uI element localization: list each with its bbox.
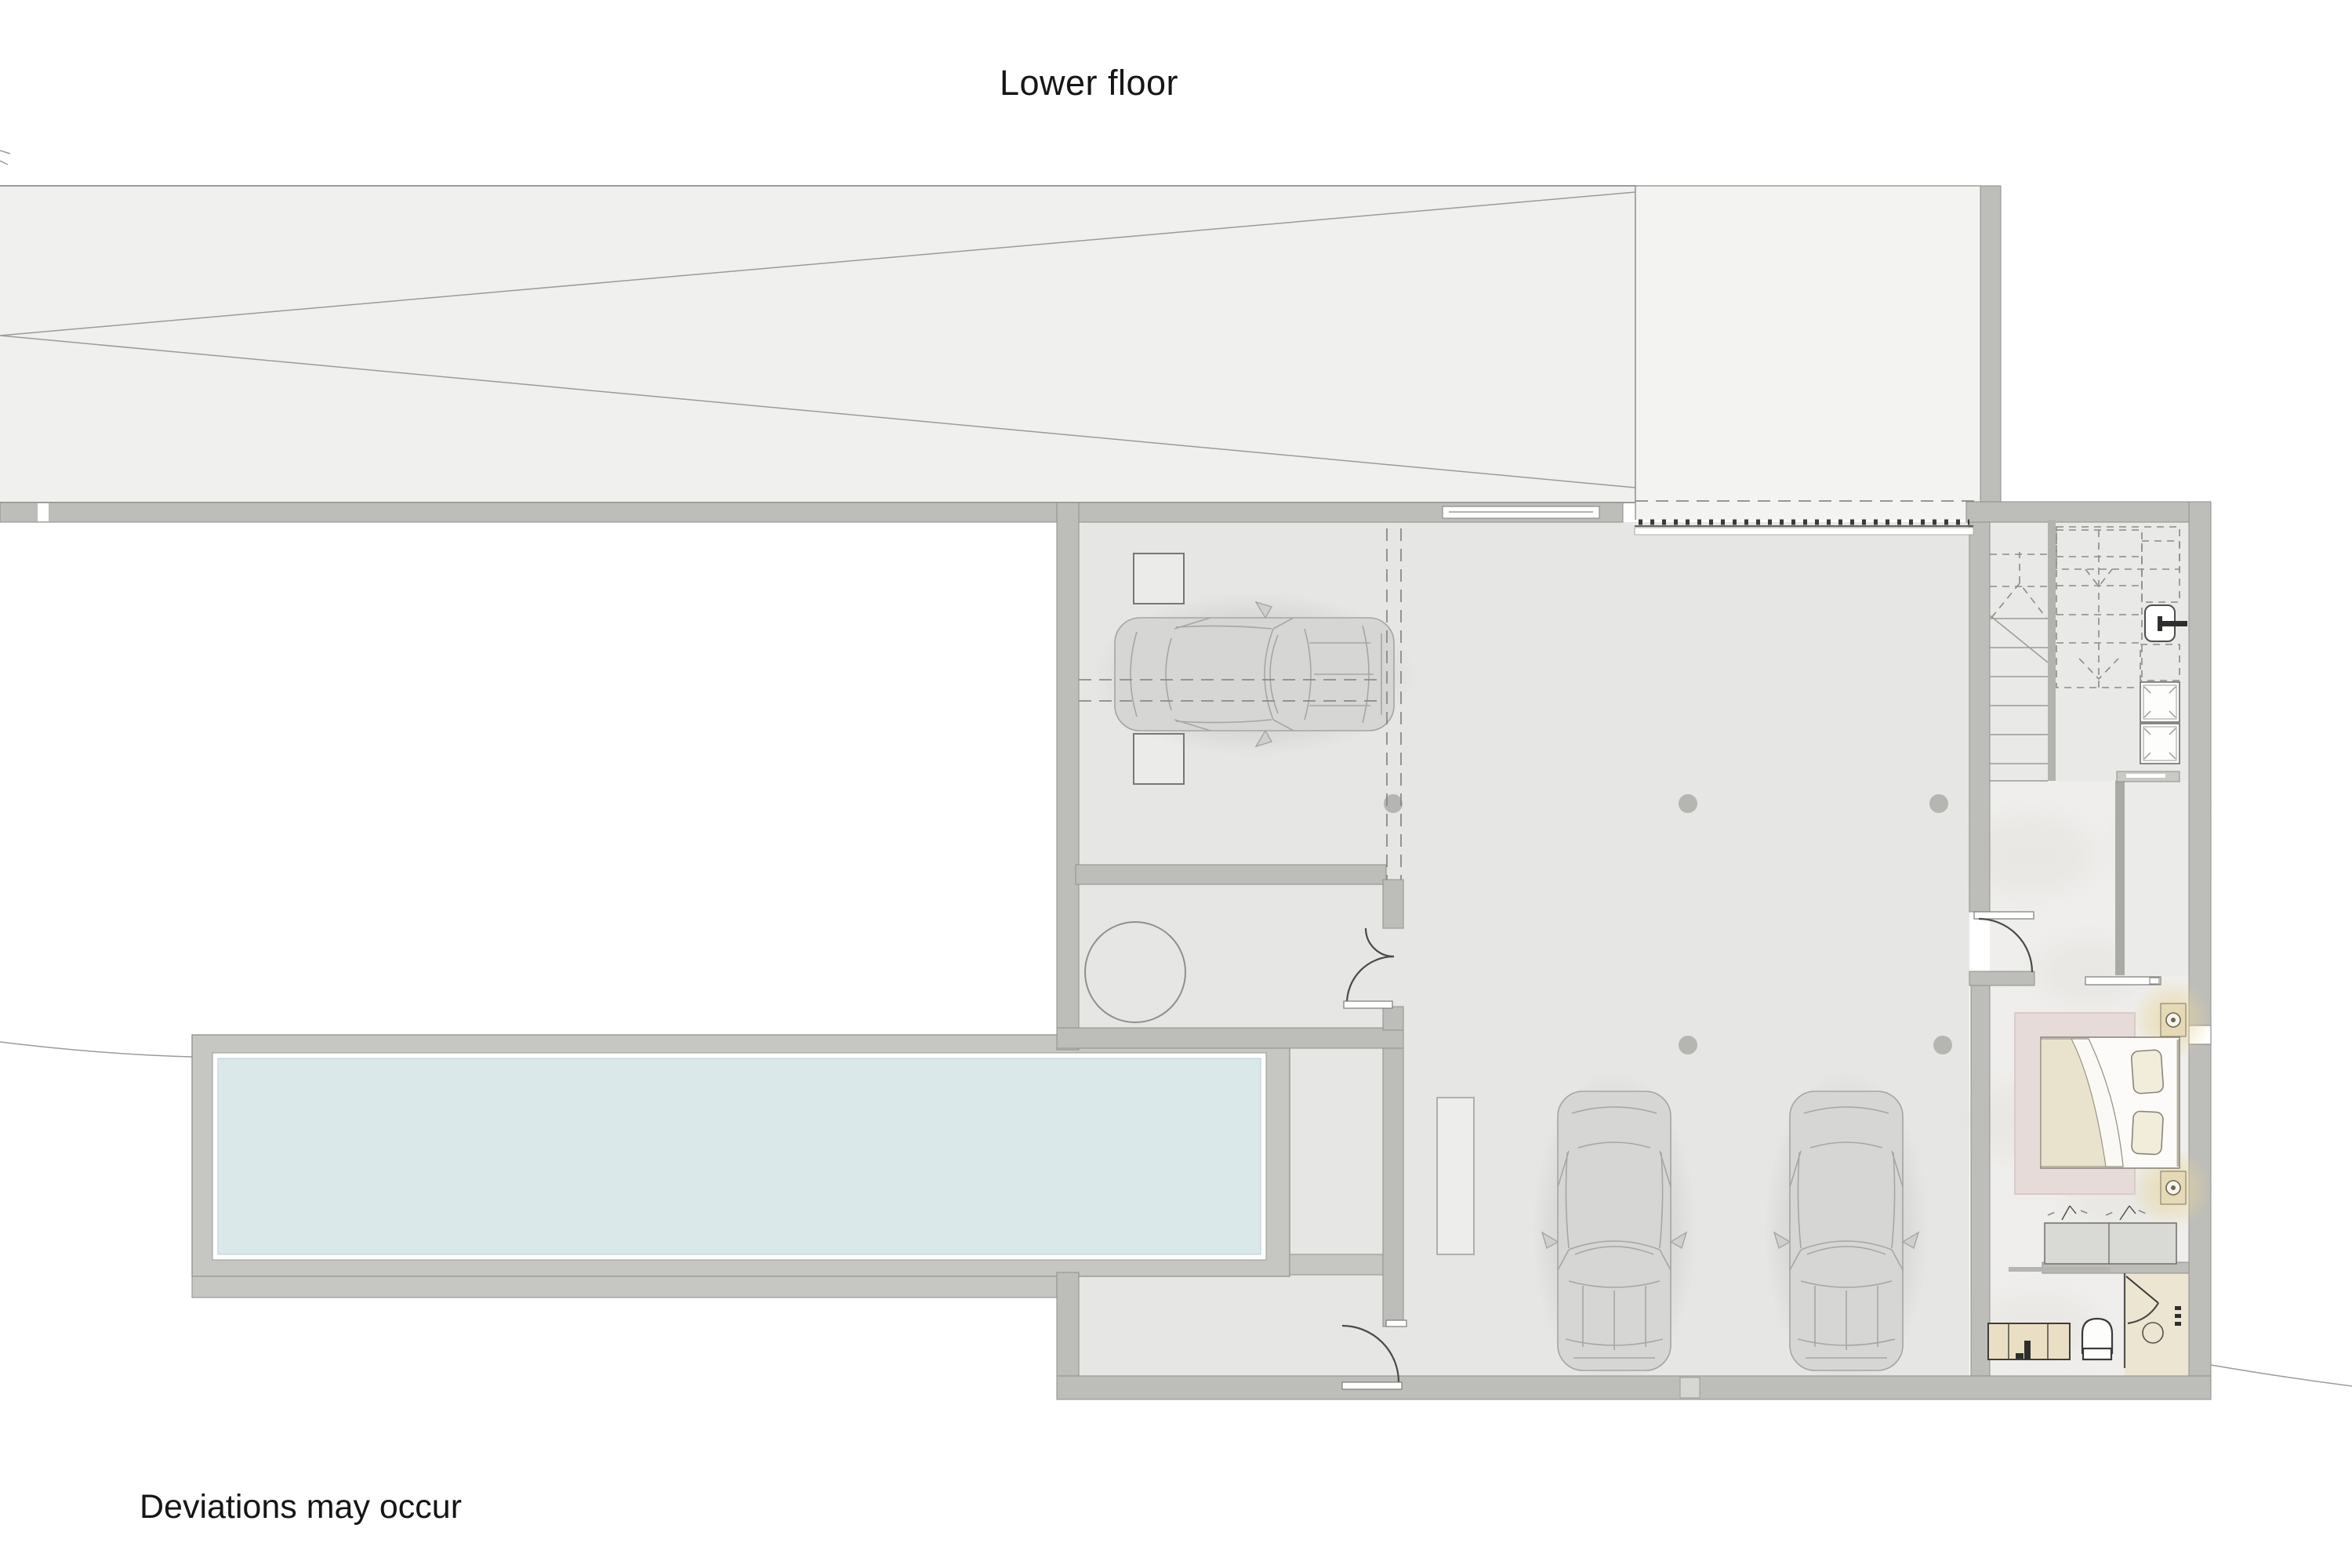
shower-head-icon xyxy=(2175,1306,2181,1326)
laundry-shelf-slot xyxy=(2126,774,2165,778)
bed xyxy=(2041,1037,2180,1168)
floor-plan: Lower floor Deviations may occur xyxy=(0,0,2352,1568)
pool-deck-south xyxy=(192,1276,1057,1298)
stair-stringer xyxy=(2048,520,2056,781)
column-dot xyxy=(1929,794,1948,813)
storage-square-top xyxy=(1134,554,1184,604)
wall-closet-partition xyxy=(2115,781,2125,975)
column-dot xyxy=(1933,1036,1952,1054)
pillow-bottom xyxy=(2132,1111,2164,1155)
ramp-landing xyxy=(1635,186,1980,520)
wall-north-west xyxy=(0,503,1623,522)
wall-garage-bedroom-b xyxy=(1971,985,1990,1377)
wall-east xyxy=(2189,502,2211,1399)
driveway-ramp xyxy=(0,151,1980,520)
terrain-ticks xyxy=(0,151,10,165)
wall-gap xyxy=(38,503,49,521)
floor-plan-drawing xyxy=(0,0,2352,1568)
car-main-garage-right xyxy=(1764,1070,1929,1392)
dryer xyxy=(2140,724,2180,764)
pillow-top xyxy=(2131,1050,2164,1094)
garage-door-panel xyxy=(1635,528,1973,535)
terrain-contour-east xyxy=(2211,1365,2352,1386)
pool-water xyxy=(218,1058,1261,1254)
laundry-faucet xyxy=(2159,621,2187,626)
closet-floor xyxy=(2125,781,2189,975)
wall-circle-room-east-a xyxy=(1383,880,1403,928)
car-single-garage xyxy=(1094,592,1415,757)
wall-south xyxy=(1057,1376,2211,1399)
wall-garage1-divider xyxy=(1076,865,1386,884)
vanity-faucet xyxy=(2024,1341,2031,1359)
wall-north-east xyxy=(1966,502,2211,522)
wall-circle-room-east-b xyxy=(1383,1007,1403,1030)
pool-area xyxy=(0,1035,1386,1298)
wall-ramp-east xyxy=(1980,186,2001,511)
laundry-faucet-handle xyxy=(2158,616,2162,631)
wall-garage-bedroom-stub xyxy=(1969,971,2034,985)
plan-title: Lower floor xyxy=(956,63,1222,103)
terrain-contour-west xyxy=(0,1042,192,1057)
wall-west xyxy=(1057,503,1079,1050)
wall-corridor-east xyxy=(1383,1048,1403,1327)
car-main-garage-left xyxy=(1532,1070,1697,1392)
wall-shelf xyxy=(2009,1267,2111,1272)
plan-disclaimer: Deviations may occur xyxy=(140,1488,462,1526)
vanity xyxy=(1988,1323,2070,1359)
south-wall-threshold xyxy=(1680,1377,1700,1398)
closet xyxy=(2085,977,2161,985)
wall-garage-bedroom-a xyxy=(1969,522,1990,912)
column-dot xyxy=(1679,1036,1697,1054)
ramp-area xyxy=(0,186,1635,503)
workbench xyxy=(1437,1098,1474,1254)
washer xyxy=(2140,682,2180,722)
nightstand-bottom xyxy=(2161,1171,2186,1204)
pool-deck-east xyxy=(1290,1254,1386,1275)
toilet xyxy=(2082,1319,2112,1359)
wall-circle-room-south xyxy=(1057,1028,1403,1048)
nightstand-top xyxy=(2161,1004,2186,1036)
column-dot xyxy=(1679,794,1697,813)
